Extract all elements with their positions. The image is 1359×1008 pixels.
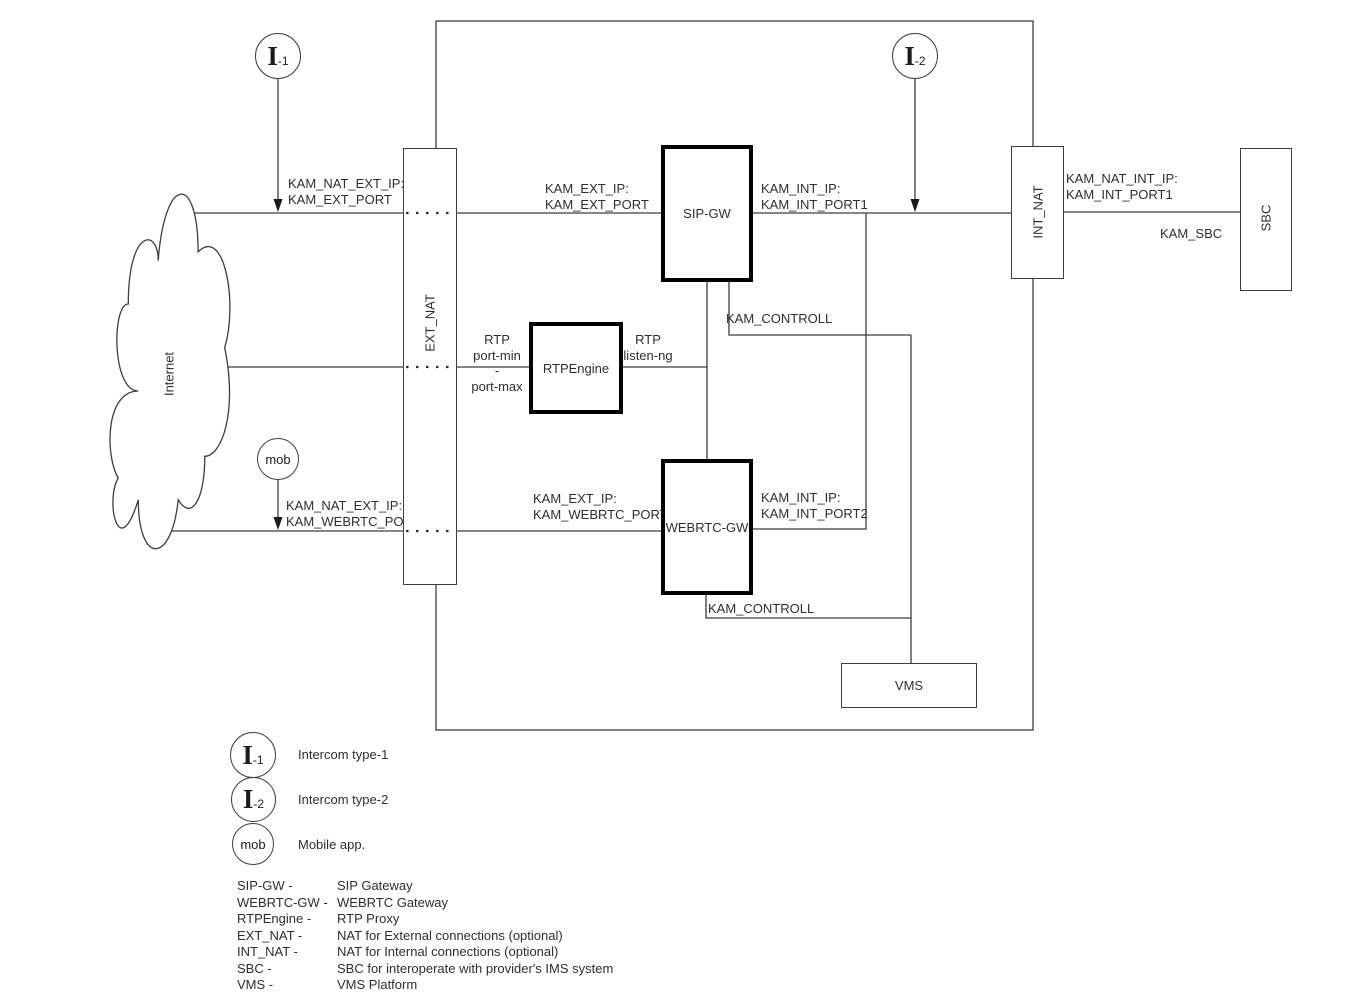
legend-row-int-nat: INT_NAT - NAT for Internal connections (… bbox=[237, 944, 613, 961]
node-sip-gw: SIP-GW bbox=[661, 145, 753, 282]
intercom2-suffix: -2 bbox=[915, 54, 926, 68]
legend-label-intercom2: Intercom type-2 bbox=[298, 792, 388, 808]
arrow-mob-head bbox=[274, 517, 283, 530]
legend-row-ext-nat: EXT_NAT - NAT for External connections (… bbox=[237, 928, 613, 945]
intercom1-symbol: I bbox=[267, 43, 278, 70]
legend-label-intercom1: Intercom type-1 bbox=[298, 747, 388, 763]
legend-row-rtpengine: RTPEngine - RTP Proxy bbox=[237, 911, 613, 928]
ext-nat-label: EXT_NAT bbox=[423, 294, 438, 352]
label-int-ip-sip: KAM_INT_IP: KAM_INT_PORT1 bbox=[761, 181, 868, 213]
node-int-nat: INT_NAT bbox=[1011, 146, 1064, 279]
label-rtp-port-range: RTP port-min - port-max bbox=[460, 332, 534, 394]
node-ext-nat: EXT_NAT bbox=[403, 148, 457, 585]
diagram-canvas: Internet KAM_NAT_EXT_IP: KAM_EXT_PORT KA… bbox=[0, 0, 1359, 1008]
legend-row-sbc: SBC - SBC for interoperate with provider… bbox=[237, 961, 613, 978]
label-nat-int-ip: KAM_NAT_INT_IP: KAM_INT_PORT1 bbox=[1066, 171, 1178, 203]
legend-circle-intercom1: I-1 bbox=[230, 732, 276, 778]
edge-webrtcgw-intnat bbox=[753, 213, 866, 529]
sip-gw-label: SIP-GW bbox=[683, 206, 731, 221]
node-vms: VMS bbox=[841, 663, 977, 708]
label-kam-controll-sip: KAM_CONTROLL bbox=[726, 311, 832, 327]
node-sbc: SBC bbox=[1240, 148, 1292, 291]
label-kam-sbc: KAM_SBC bbox=[1160, 226, 1222, 242]
rtpengine-label: RTPEngine bbox=[543, 361, 609, 376]
node-webrtc-gw: WEBRTC-GW bbox=[661, 459, 753, 595]
sbc-label: SBC bbox=[1259, 205, 1274, 232]
label-ext-ip-webrtc: KAM_EXT_IP: KAM_WEBRTC_PORT bbox=[533, 491, 668, 523]
vms-label: VMS bbox=[895, 678, 923, 693]
arrow-i2-head bbox=[911, 199, 920, 212]
legend-terms: SIP-GW - SIP Gateway WEBRTC-GW - WEBRTC … bbox=[237, 878, 613, 994]
legend-circle-mob: mob bbox=[232, 823, 274, 865]
legend-row-sip-gw: SIP-GW - SIP Gateway bbox=[237, 878, 613, 895]
edge-sipgw-controll bbox=[729, 282, 911, 335]
legend-circle-intercom2: I-2 bbox=[231, 777, 276, 822]
legend-row-vms: VMS - VMS Platform bbox=[237, 977, 613, 994]
mob-label: mob bbox=[265, 452, 290, 467]
node-rtpengine: RTPEngine bbox=[529, 322, 623, 414]
webrtc-gw-label: WEBRTC-GW bbox=[666, 520, 749, 535]
arrow-i1-head bbox=[274, 199, 283, 212]
intercom1-suffix: -1 bbox=[278, 54, 289, 68]
legend-row-webrtc-gw: WEBRTC-GW - WEBRTC Gateway bbox=[237, 895, 613, 912]
intercom2-symbol: I bbox=[904, 43, 915, 70]
legend-label-mob: Mobile app. bbox=[298, 837, 365, 853]
actor-mob: mob bbox=[257, 438, 299, 480]
actor-intercom2: I-2 bbox=[892, 33, 938, 79]
label-int-ip-webrtc: KAM_INT_IP: KAM_INT_PORT2 bbox=[761, 490, 868, 522]
label-kam-controll-webrtc: KAM_CONTROLL bbox=[708, 601, 814, 617]
int-nat-label: INT_NAT bbox=[1030, 185, 1045, 238]
label-nat-ext-bottom: KAM_NAT_EXT_IP: KAM_WEBRTC_PORT bbox=[286, 498, 421, 530]
internet-node-label: Internet bbox=[162, 352, 177, 396]
label-nat-ext-top: KAM_NAT_EXT_IP: KAM_EXT_PORT bbox=[288, 176, 404, 208]
label-ext-ip-sip: KAM_EXT_IP: KAM_EXT_PORT bbox=[545, 181, 649, 213]
actor-intercom1: I-1 bbox=[255, 33, 301, 79]
